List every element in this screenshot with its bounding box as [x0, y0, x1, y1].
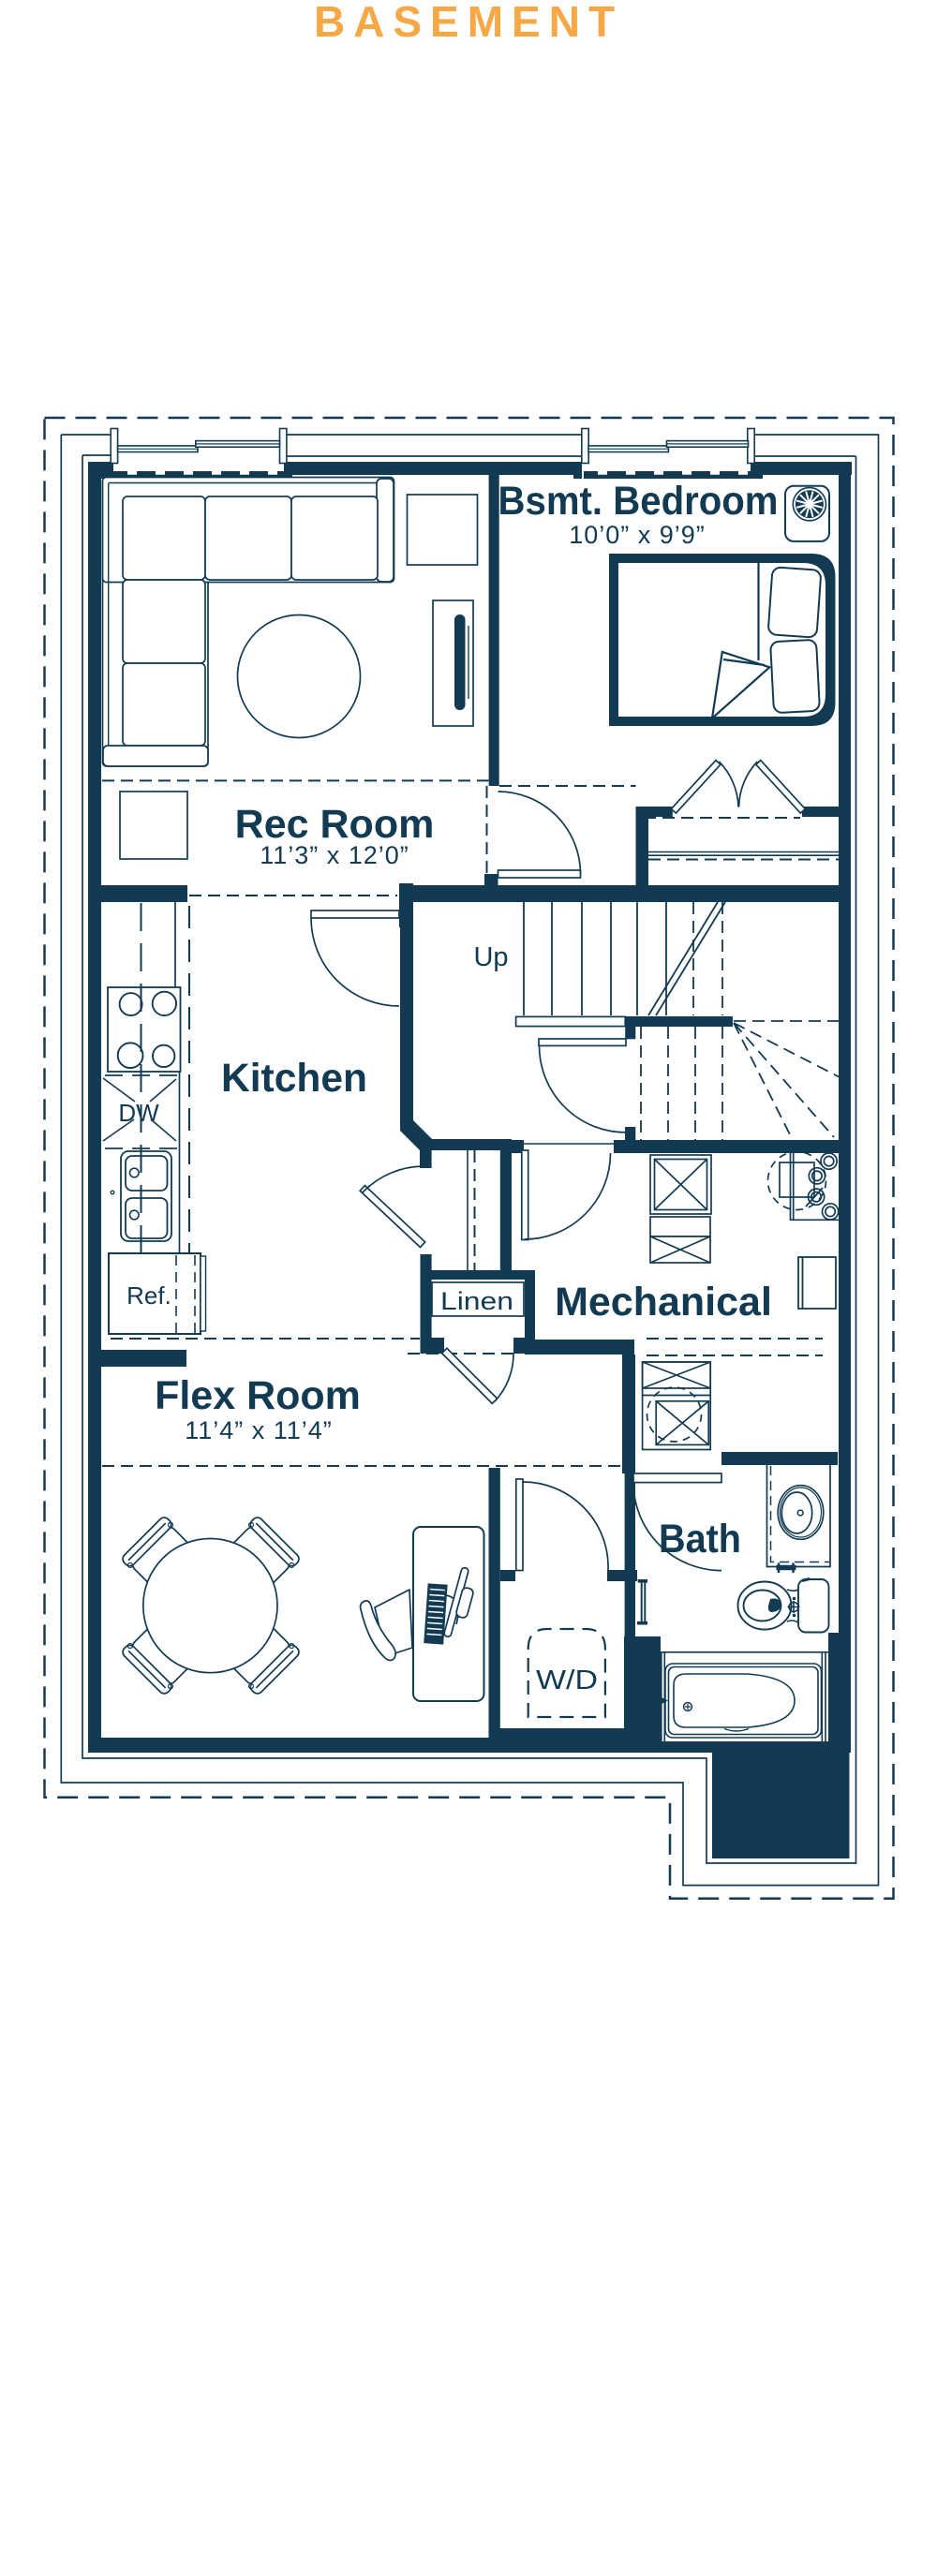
- svg-text:11’4” x 11’4”: 11’4” x 11’4”: [185, 1416, 333, 1444]
- svg-text:Bsmt. Bedroom: Bsmt. Bedroom: [498, 479, 779, 524]
- svg-text:Flex Room: Flex Room: [155, 1373, 361, 1418]
- svg-text:Mechanical: Mechanical: [555, 1280, 772, 1325]
- svg-text:Rec Room: Rec Room: [235, 802, 435, 847]
- svg-text:Up: Up: [473, 942, 508, 972]
- svg-text:10’0” x 9’9”: 10’0” x 9’9”: [569, 521, 706, 549]
- svg-text:BASEMENT: BASEMENT: [314, 0, 623, 46]
- svg-text:Ref.: Ref.: [126, 1281, 171, 1310]
- svg-text:Bath: Bath: [659, 1517, 741, 1562]
- svg-text:Linen: Linen: [440, 1287, 513, 1315]
- svg-text:W/D: W/D: [536, 1666, 598, 1695]
- svg-text:Kitchen: Kitchen: [221, 1056, 367, 1101]
- svg-text:11’3” x 12’0”: 11’3” x 12’0”: [260, 841, 409, 869]
- svg-text:DW: DW: [118, 1099, 159, 1127]
